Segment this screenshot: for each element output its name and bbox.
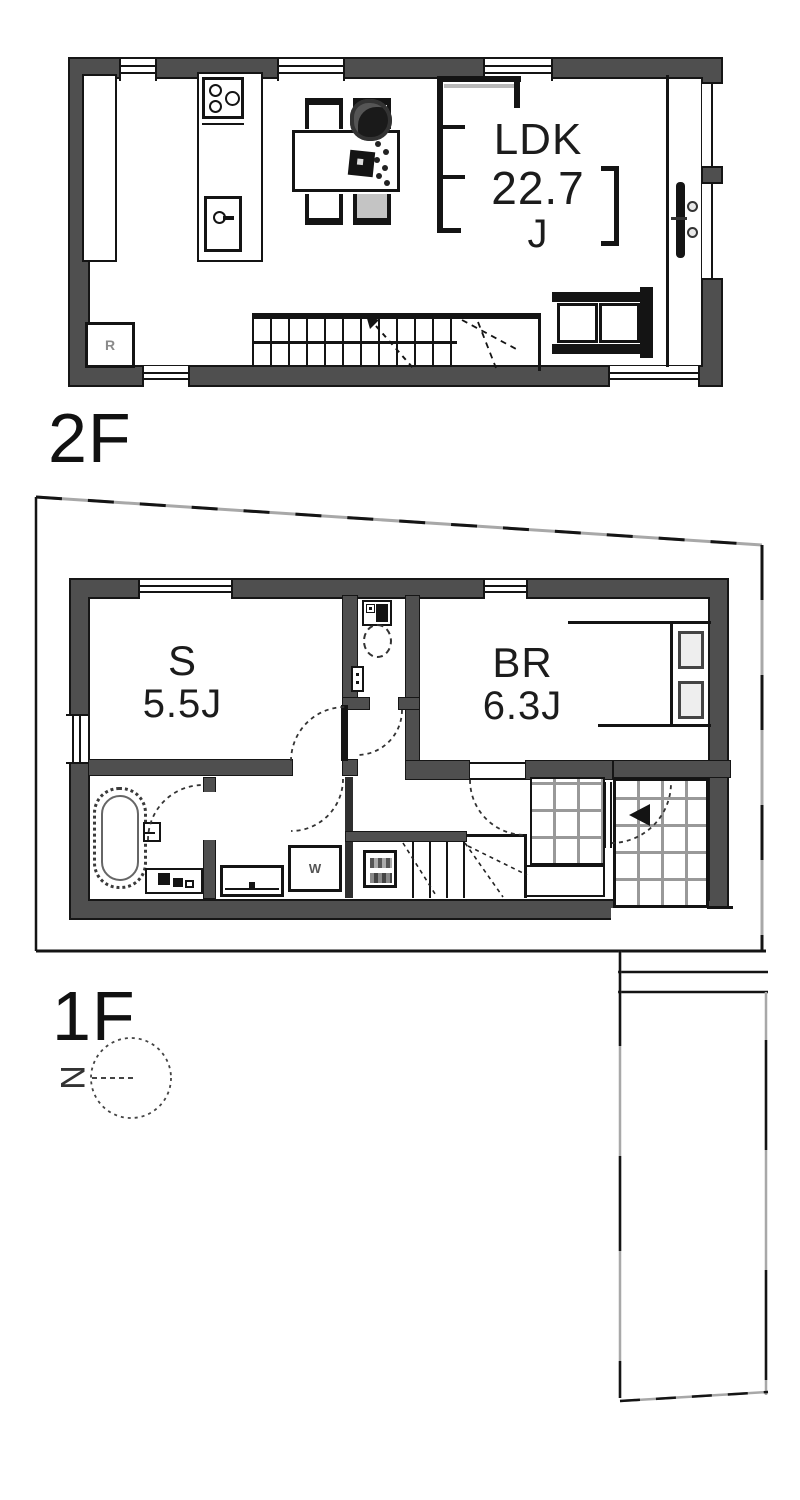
door-arc	[357, 710, 402, 755]
floor-plan-canvas: LDK 22.7 J R 2F	[0, 0, 800, 1500]
winder-line	[403, 843, 437, 897]
winder-line	[462, 320, 518, 350]
winder-line	[468, 846, 527, 875]
linework-overlay	[0, 0, 800, 1500]
entry-door-marker	[629, 804, 650, 826]
door-arc	[291, 779, 343, 831]
door-arc	[470, 780, 525, 835]
winder-line	[478, 322, 496, 368]
stair-arrow-line	[376, 326, 413, 368]
door-arc	[148, 785, 203, 840]
door-arc	[291, 707, 345, 761]
winder-line	[465, 843, 503, 897]
